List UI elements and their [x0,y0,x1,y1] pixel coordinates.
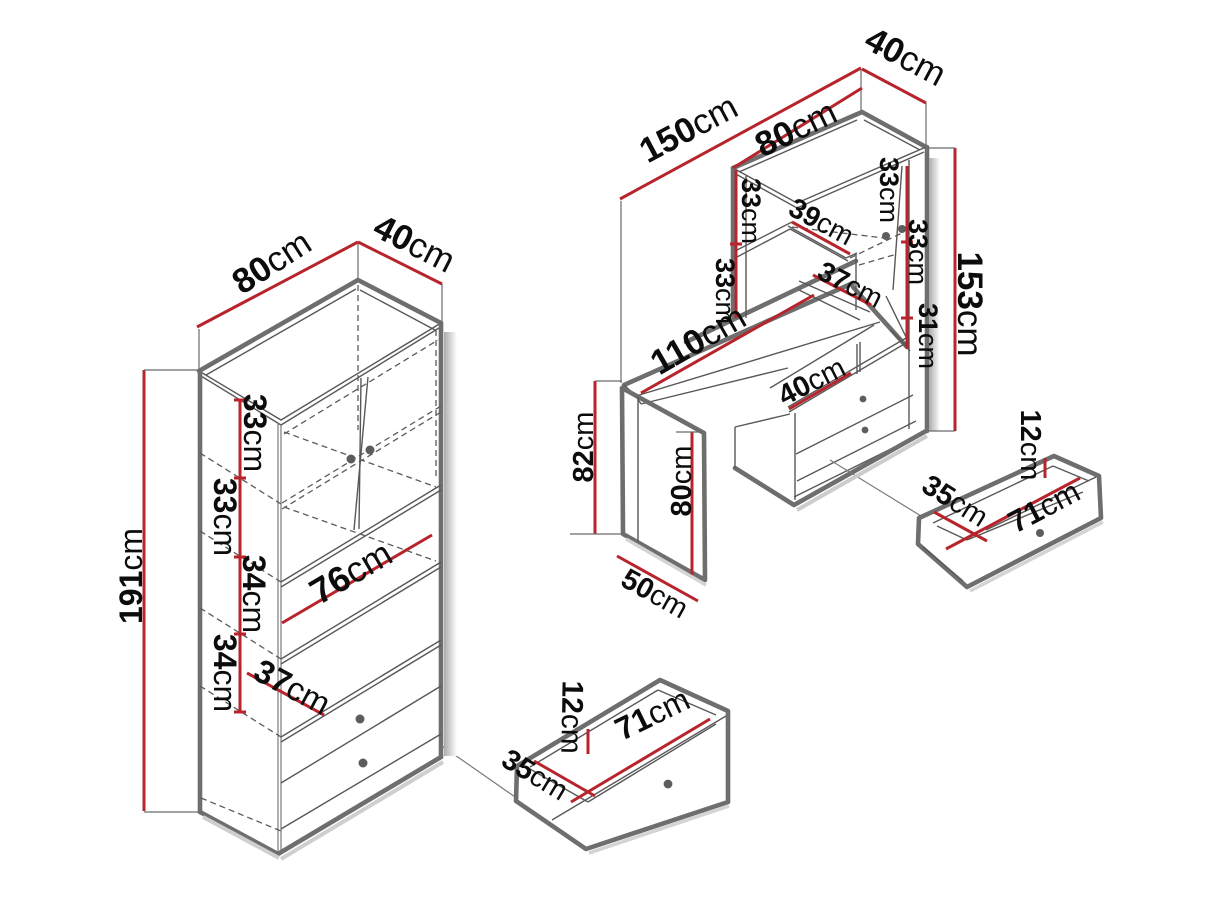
svg-text:191cm: 191cm [113,528,149,624]
svg-text:33cm: 33cm [874,157,904,223]
svg-text:153cm: 153cm [950,251,989,356]
svg-text:12cm: 12cm [554,680,588,754]
svg-text:33cm: 33cm [736,178,766,244]
svg-text:33cm: 33cm [903,219,933,285]
svg-text:34cm: 34cm [207,634,243,712]
svg-text:31cm: 31cm [913,303,943,369]
svg-text:82cm: 82cm [568,412,600,483]
svg-text:12cm: 12cm [1014,410,1046,481]
svg-text:33cm: 33cm [237,394,273,472]
svg-text:33cm: 33cm [207,478,243,556]
svg-text:80cm: 80cm [666,446,698,517]
svg-text:34cm: 34cm [236,555,272,633]
